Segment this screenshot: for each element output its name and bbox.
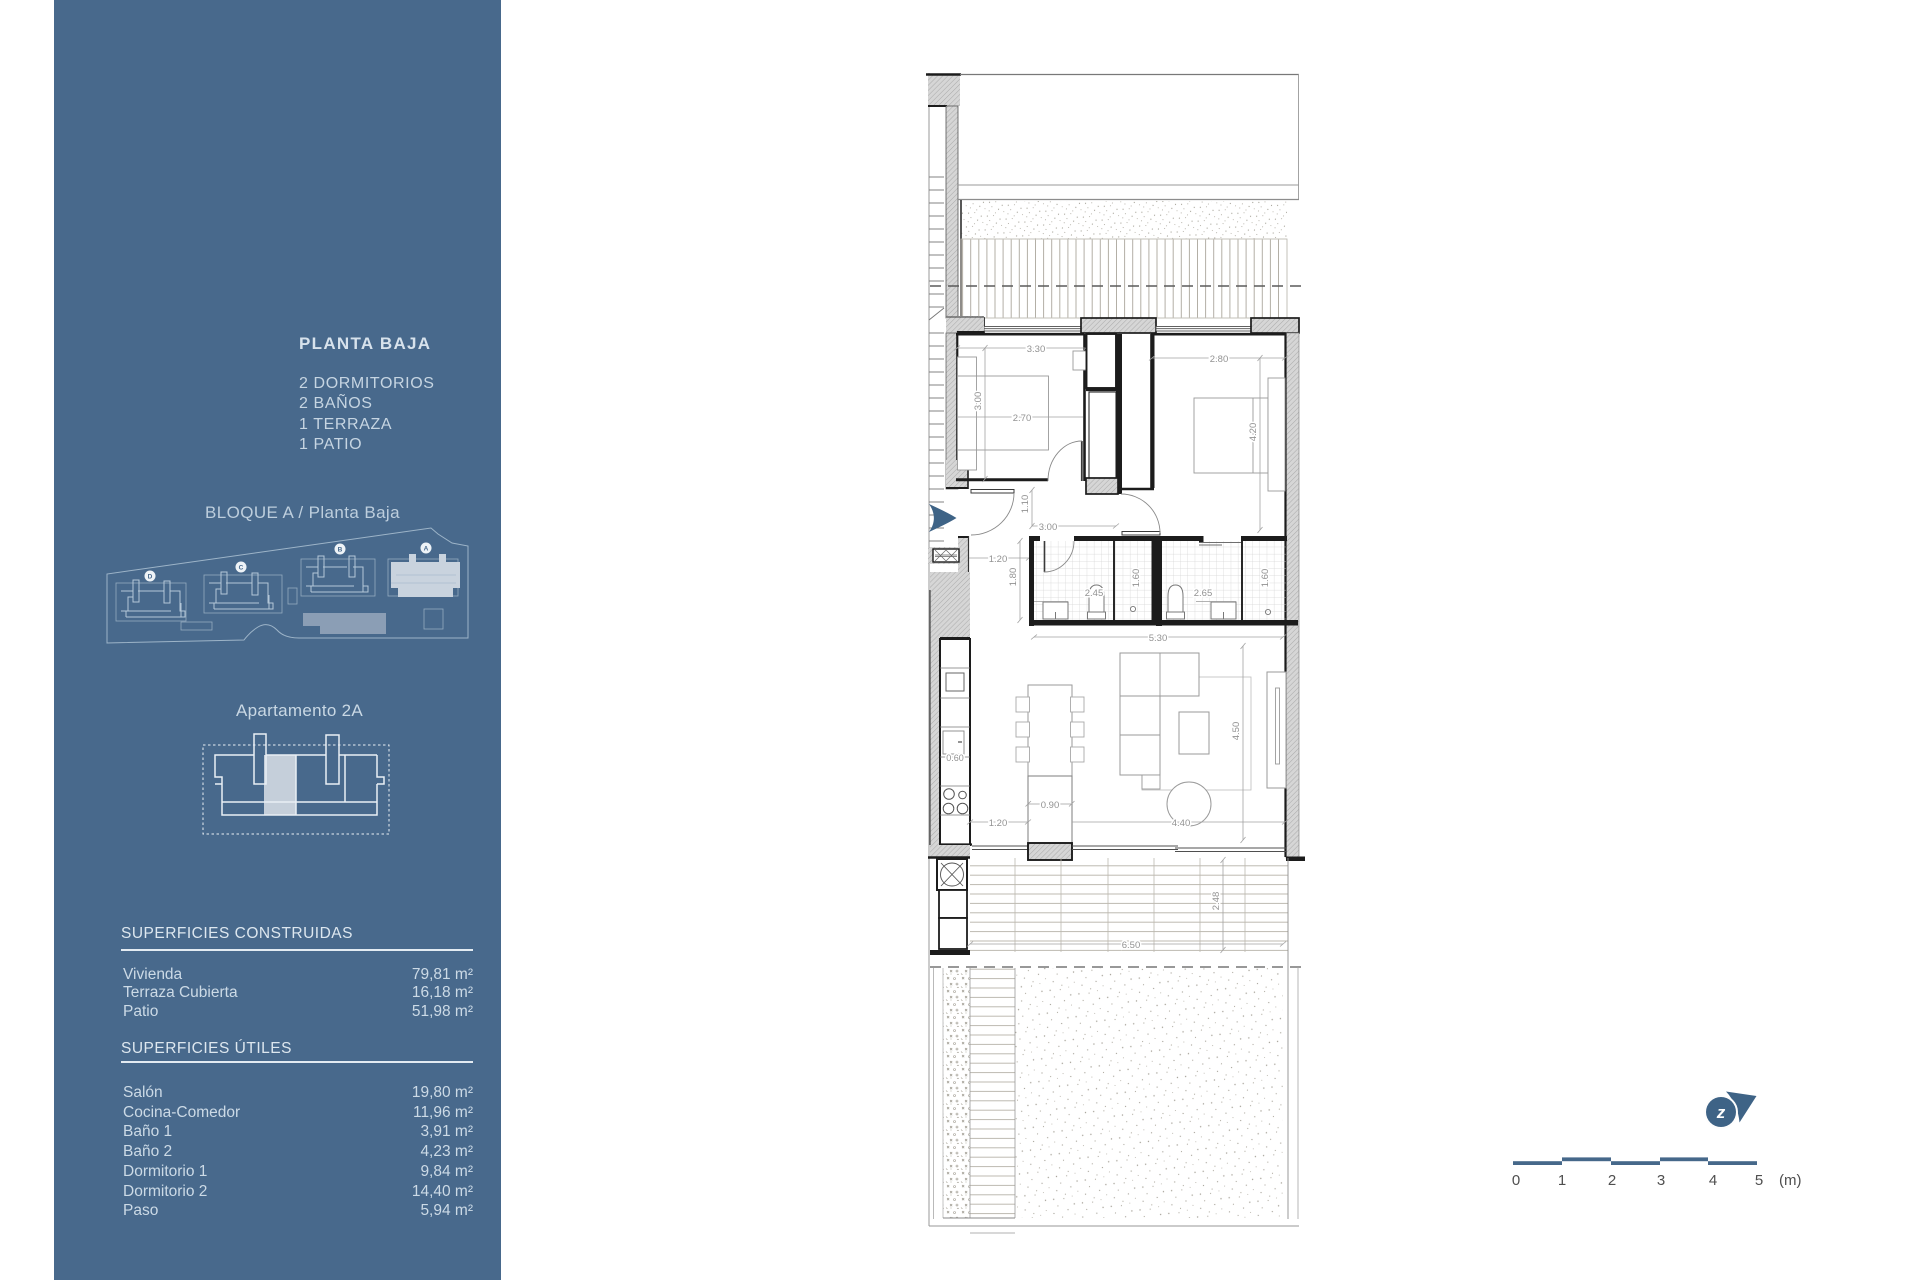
svg-text:z: z [1716,1103,1726,1122]
svg-text:2.80: 2.80 [1210,354,1229,365]
svg-text:1.10: 1.10 [1020,495,1031,514]
svg-text:1.60: 1.60 [1131,569,1142,588]
svg-text:5: 5 [1755,1172,1763,1189]
svg-text:A: A [424,546,429,553]
svg-text:3.00: 3.00 [1039,522,1058,533]
svg-text:3.30: 3.30 [1027,344,1046,355]
svg-text:4: 4 [1709,1172,1717,1189]
svg-text:0.90: 0.90 [1041,800,1060,811]
svg-text:3.00: 3.00 [973,392,984,411]
svg-text:6.50: 6.50 [1122,940,1141,951]
svg-text:0.60: 0.60 [946,753,964,763]
svg-text:B: B [338,547,343,554]
svg-text:C: C [239,565,244,572]
svg-text:2.65: 2.65 [1194,588,1213,599]
svg-text:3: 3 [1657,1172,1665,1189]
svg-text:(m): (m) [1779,1172,1802,1189]
svg-text:1.80: 1.80 [1008,568,1019,587]
svg-text:2.70: 2.70 [1013,413,1032,424]
svg-text:4.40: 4.40 [1172,818,1191,829]
svg-text:1.20: 1.20 [989,554,1008,565]
svg-text:4.50: 4.50 [1231,722,1242,741]
svg-text:2: 2 [1608,1172,1616,1189]
svg-text:2.45: 2.45 [1085,588,1104,599]
svg-text:1.60: 1.60 [1260,569,1271,588]
svg-text:0: 0 [1512,1172,1520,1189]
svg-text:1: 1 [1558,1172,1566,1189]
svg-text:D: D [148,574,153,581]
svg-text:5.30: 5.30 [1149,633,1168,644]
svg-text:4.20: 4.20 [1248,423,1259,442]
svg-text:2.48: 2.48 [1211,892,1222,911]
svg-text:1.20: 1.20 [989,818,1008,829]
